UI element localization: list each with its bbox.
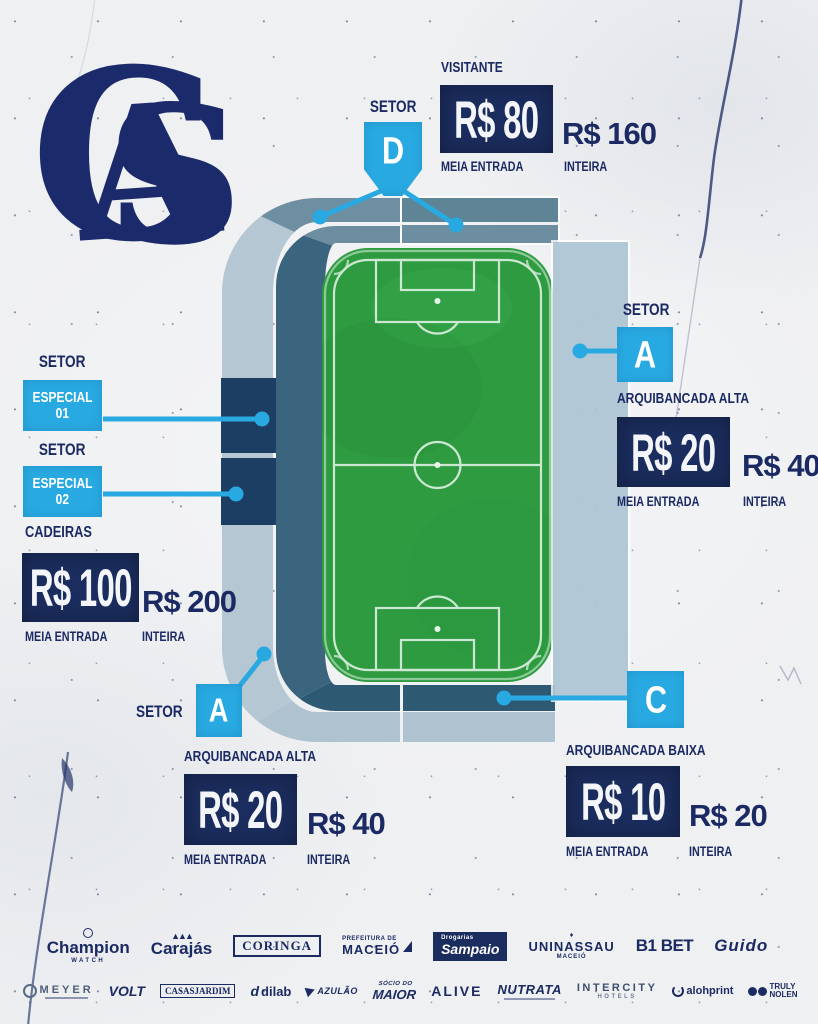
sponsor-dilab: d dilab	[250, 983, 291, 999]
sponsor-nutrata: NUTRATA	[497, 982, 561, 1000]
sector-a-bottom-badge-letter: A	[209, 691, 229, 730]
sponsor-coringa: CORINGA	[233, 935, 321, 957]
cadeiras-half-label: MEIA ENTRADA	[25, 629, 128, 644]
sector-especial-01-stand	[221, 378, 276, 453]
sector-d-stand-lower-row	[402, 225, 558, 243]
a-right-title: ARQUIBANCADA ALTA	[617, 390, 782, 407]
sector-c-badge-letter: C	[644, 677, 666, 721]
cadeiras-title: CADEIRAS	[25, 524, 109, 542]
c-half-label: MEIA ENTRADA	[566, 844, 669, 859]
visitante-title: VISITANTE	[441, 59, 518, 76]
sponsor-row-primary: Champion WATCH ▲▲▲ Carajás CORINGA PREFE…	[95, 922, 720, 970]
sponsor-uninassau: ♦ UNINASSAU MACEIÓ	[528, 933, 614, 960]
truly-nolen-circles-icon	[748, 987, 767, 996]
sector-a-right-badge-letter: A	[634, 332, 656, 376]
meyer-subline	[45, 997, 88, 999]
sector-a-bottom-badge: A	[196, 684, 242, 737]
a-right-full-price: R$ 40	[742, 448, 818, 484]
sector-d-stand	[402, 198, 558, 243]
stadium-bottom-outer-stand	[403, 712, 555, 742]
sponsor-azulao: AZULÃO	[306, 986, 358, 996]
sponsor-guido: Guido	[714, 936, 768, 956]
especial-01-setor-label: SETOR	[23, 352, 102, 372]
a-bottom-full-price: R$ 40	[307, 806, 385, 842]
c-full-label: INTEIRA	[689, 844, 743, 859]
especial-01-badge: ESPECIAL 01	[23, 380, 102, 431]
champion-circle-icon	[83, 928, 93, 938]
sector-a-bottom-setor-label: SETOR	[136, 702, 194, 722]
cadeiras-half-price-box: R$ 100	[22, 553, 139, 622]
sector-d-stand-upper-row	[402, 198, 558, 222]
a-bottom-title: ARQUIBANCADA ALTA	[184, 748, 349, 765]
a-right-half-price-box: R$ 20	[617, 417, 730, 487]
a-bottom-half-label: MEIA ENTRADA	[184, 852, 287, 867]
sponsor-volt: VOLT	[109, 983, 145, 999]
csa-club-crest: C S A	[38, 30, 248, 285]
sponsor-alohprint: alohprint	[672, 985, 733, 997]
cadeiras-full-price: R$ 200	[142, 584, 236, 620]
a-bottom-full-label: INTEIRA	[307, 852, 361, 867]
especial-02-badge-text: ESPECIAL 02	[25, 476, 100, 508]
sponsor-prefeitura-maceio: PREFEITURA DE MACEIÓ	[342, 936, 412, 957]
visitante-half-label: MEIA ENTRADA	[441, 159, 544, 174]
sponsor-intercity: INTERCITY HOTELS	[577, 982, 658, 1000]
svg-text:A: A	[68, 60, 229, 284]
visitante-full-price: R$ 160	[562, 116, 656, 152]
dilab-d-icon: d	[250, 983, 259, 999]
especial-02-setor-label: SETOR	[23, 440, 102, 460]
sponsor-row-secondary: MEYER VOLT CASASJARDIM d dilab AZULÃO SÓ…	[95, 972, 725, 1010]
c-title: ARQUIBANCADA BAIXA	[566, 742, 740, 759]
c-half-price-box: R$ 10	[566, 766, 680, 837]
a-right-full-label: INTEIRA	[743, 494, 797, 509]
a-right-half-price: R$ 20	[631, 421, 715, 483]
sponsor-meyer: MEYER	[23, 984, 94, 999]
sector-d-badge-letter: D	[382, 129, 404, 173]
sponsor-casas-jardim: CASASJARDIM	[160, 984, 236, 998]
visitante-half-price-box: R$ 80	[440, 85, 553, 153]
especial-01-badge-text: ESPECIAL 01	[25, 390, 100, 422]
maceio-sailboat-icon	[403, 941, 412, 952]
sector-c-badge: C	[627, 671, 684, 728]
azulao-bird-icon	[305, 985, 317, 997]
visitante-half-price: R$ 80	[454, 88, 538, 150]
sponsor-alive: ALIVE	[431, 983, 482, 999]
c-full-price: R$ 20	[689, 798, 767, 834]
sponsor-truly-nolen: TRULY NOLEN	[748, 983, 797, 999]
sector-a-right-badge: A	[617, 327, 673, 382]
a-right-half-label: MEIA ENTRADA	[617, 494, 720, 509]
visitante-full-label: INTEIRA	[564, 159, 618, 174]
ticket-price-poster: C S A	[0, 0, 818, 1024]
alohprint-circle-icon	[672, 985, 684, 997]
cadeiras-half-price: R$ 100	[30, 557, 132, 619]
sponsor-carajas: ▲▲▲ Carajás	[151, 933, 212, 959]
cadeiras-full-label: INTEIRA	[142, 629, 196, 644]
sponsor-b1bet: B1 BET	[636, 936, 693, 956]
nutrata-subline	[504, 998, 556, 1000]
sponsor-drogarias-sampaio: Drogarias Sampaio	[433, 932, 507, 961]
especial-02-badge: ESPECIAL 02	[23, 466, 102, 517]
meyer-ring-icon	[23, 984, 37, 998]
sector-especial-02-stand	[221, 458, 276, 525]
sponsor-socio-do-maior: SÓCIO DO MAIOR	[372, 981, 418, 1002]
a-bottom-half-price: R$ 20	[198, 779, 282, 841]
c-half-price: R$ 10	[581, 771, 665, 833]
sector-a-right-setor-label: SETOR	[617, 300, 673, 320]
football-pitch	[322, 248, 553, 682]
stadium-bottom-lower-stand	[403, 685, 555, 711]
sponsor-champion-watch: Champion WATCH	[47, 928, 130, 964]
sector-d-setor-label: SETOR	[364, 97, 422, 117]
a-bottom-half-price-box: R$ 20	[184, 774, 297, 845]
